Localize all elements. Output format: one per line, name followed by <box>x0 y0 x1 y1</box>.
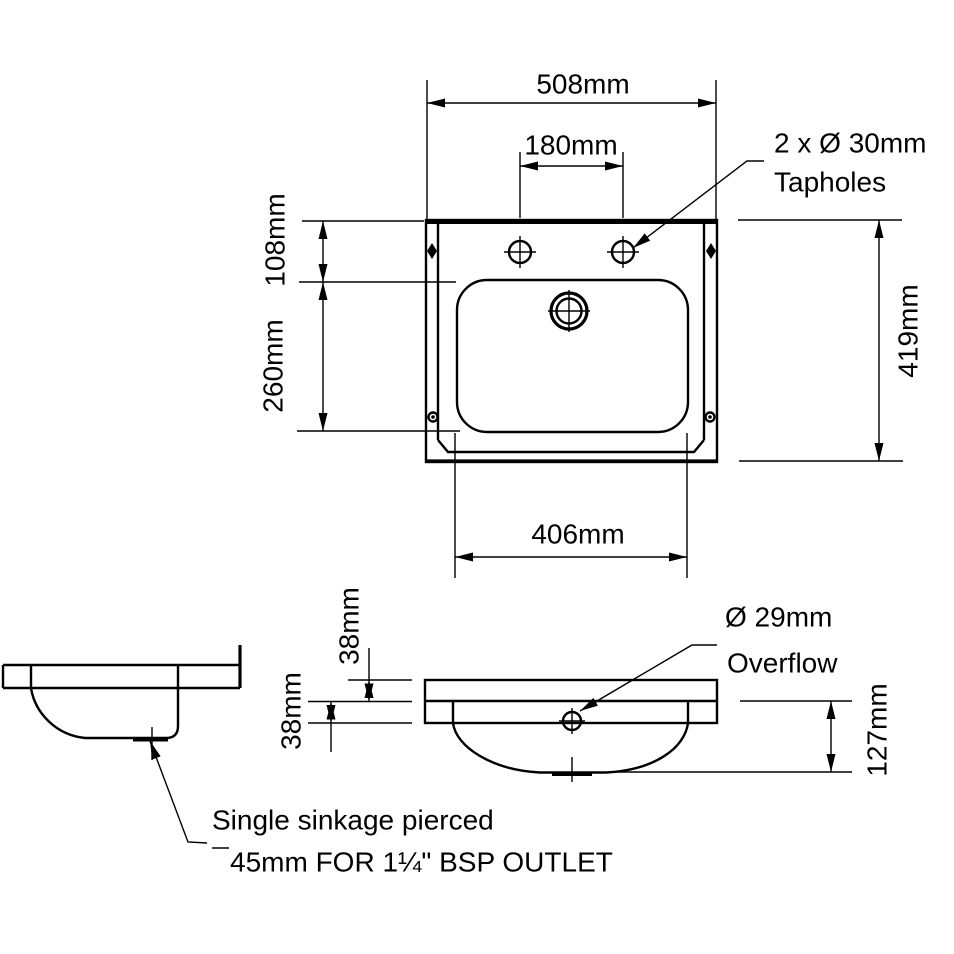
fixing-hole-left <box>429 413 438 422</box>
waste-outlet-symbol <box>548 290 590 332</box>
section-dimensions: 38mm 38mm 127mm Ø 29mm Overflow Single s… <box>150 587 893 877</box>
overflow-note-line1: Ø 29mm <box>725 602 832 633</box>
rim-inner-line-front <box>438 440 704 452</box>
outlet-note-line1: Single sinkage pierced <box>212 805 494 836</box>
dim-overall-depth: 419mm <box>738 220 924 461</box>
dim-rim-to-bowl-label: 108mm <box>260 193 291 286</box>
front-section-view <box>425 680 717 782</box>
outlet-note-line2: 45mm FOR 1¼" BSP OUTLET <box>230 847 613 878</box>
dim-overall-width-label: 508mm <box>536 69 629 100</box>
side-profile-view <box>3 645 240 760</box>
dim-taphole-spacing-label: 180mm <box>524 130 617 161</box>
plan-dimensions: 508mm 180mm 108mm 260mm 419mm <box>258 69 927 579</box>
tapholes-annotation: 2 x Ø 30mm Tapholes <box>633 128 926 249</box>
dim-bowl-width-label: 406mm <box>531 519 624 550</box>
dim-overall-depth-label: 419mm <box>893 284 924 377</box>
dim-rim-band-lower: 38mm <box>276 672 413 752</box>
profile-bowl-outline <box>31 666 178 738</box>
dim-taphole-spacing: 180mm <box>520 130 623 219</box>
dim-rim-band-upper: 38mm <box>308 587 412 701</box>
bowl-outline-plan <box>457 280 688 432</box>
overflow-annotation: Ø 29mm Overflow <box>580 602 838 712</box>
outlet-annotation: Single sinkage pierced 45mm FOR 1¼" BSP … <box>150 741 613 878</box>
tapholes-note-line2: Tapholes <box>774 167 886 198</box>
dim-bowl-length-label: 260mm <box>258 319 289 412</box>
plan-view <box>425 220 718 462</box>
fixing-hole-right <box>706 413 715 422</box>
outlet-leader-arrow <box>150 741 207 843</box>
dim-bowl-length: 260mm <box>258 282 461 431</box>
dim-rim-band-lower-label: 38mm <box>276 672 307 750</box>
taphole-right-symbol <box>607 236 639 268</box>
dim-bowl-width: 406mm <box>455 433 687 578</box>
overflow-note-line2: Overflow <box>727 648 838 679</box>
fixing-lug-diamond-right <box>706 243 716 259</box>
taphole-left-symbol <box>504 236 536 268</box>
tapholes-note-line1: 2 x Ø 30mm <box>774 128 926 159</box>
dim-rim-band-upper-label: 38mm <box>334 587 365 665</box>
dim-bowl-depth-label: 127mm <box>862 683 893 776</box>
technical-drawing-svg: 508mm 180mm 108mm 260mm 419mm <box>0 0 954 954</box>
tapholes-leader-arrow <box>633 161 764 248</box>
technical-drawing-page: 508mm 180mm 108mm 260mm 419mm <box>0 0 954 954</box>
fixing-lug-diamond-left <box>427 243 437 259</box>
overflow-hole-symbol <box>559 708 585 734</box>
